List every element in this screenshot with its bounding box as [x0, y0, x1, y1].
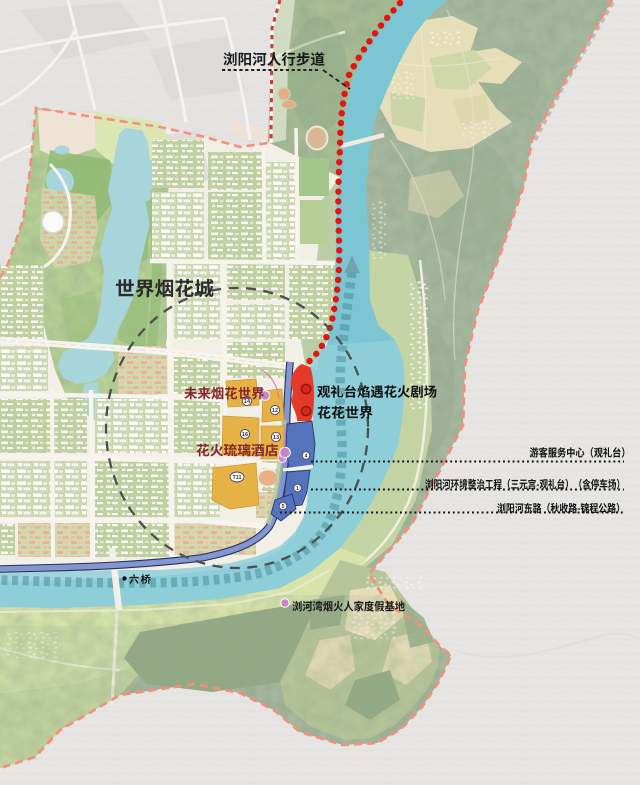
svg-text:T11: T11: [233, 475, 242, 481]
svg-text:16: 16: [242, 432, 248, 438]
svg-text:1: 1: [296, 486, 299, 492]
svg-text:14: 14: [244, 399, 251, 405]
svg-text:12: 12: [272, 408, 278, 414]
svg-text:13: 13: [273, 435, 279, 441]
svg-text:5: 5: [282, 504, 285, 510]
svg-text:4: 4: [305, 453, 308, 459]
